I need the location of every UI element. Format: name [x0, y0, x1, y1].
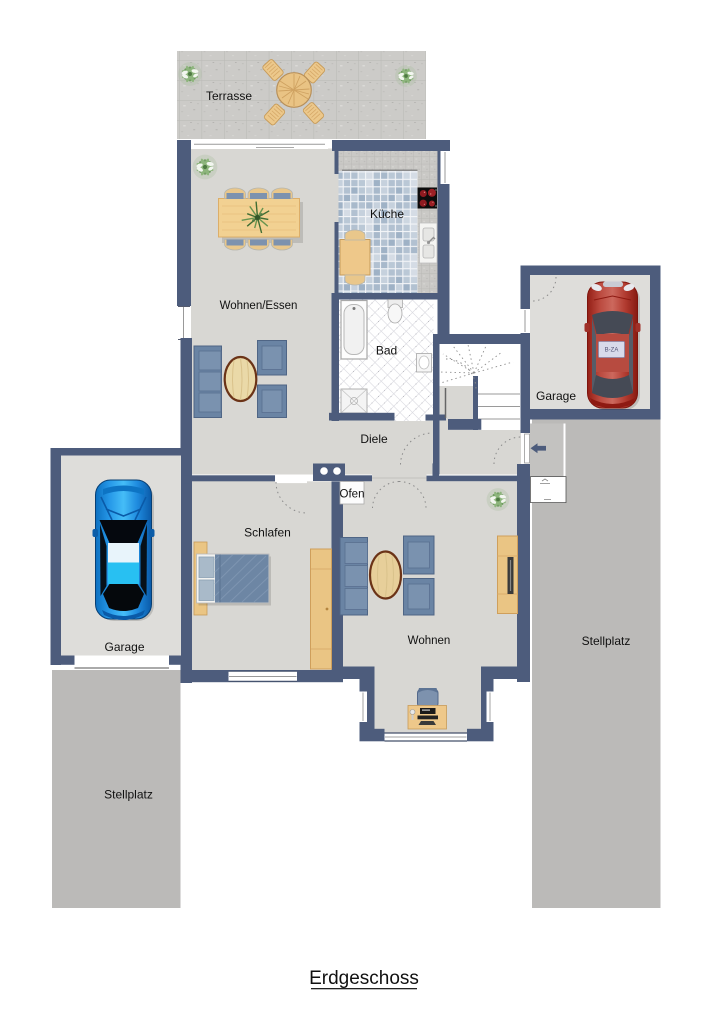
svg-text:Wohnen/Essen: Wohnen/Essen — [220, 300, 298, 312]
svg-text:Ofen: Ofen — [340, 489, 365, 501]
svg-text:Garage: Garage — [536, 389, 576, 403]
svg-text:Wohnen: Wohnen — [408, 635, 451, 647]
svg-text:Bad: Bad — [376, 344, 397, 358]
svg-text:Garage: Garage — [104, 640, 144, 654]
svg-text:Schlafen: Schlafen — [244, 526, 291, 540]
svg-text:Stellplatz: Stellplatz — [582, 634, 631, 648]
svg-text:B-ZA: B-ZA — [605, 348, 619, 354]
svg-text:Diele: Diele — [360, 432, 388, 446]
svg-text:Erdgeschoss: Erdgeschoss — [309, 968, 419, 989]
svg-text:Terrasse: Terrasse — [206, 89, 252, 103]
svg-text:Stellplatz: Stellplatz — [104, 788, 153, 802]
svg-text:Küche: Küche — [370, 207, 404, 221]
